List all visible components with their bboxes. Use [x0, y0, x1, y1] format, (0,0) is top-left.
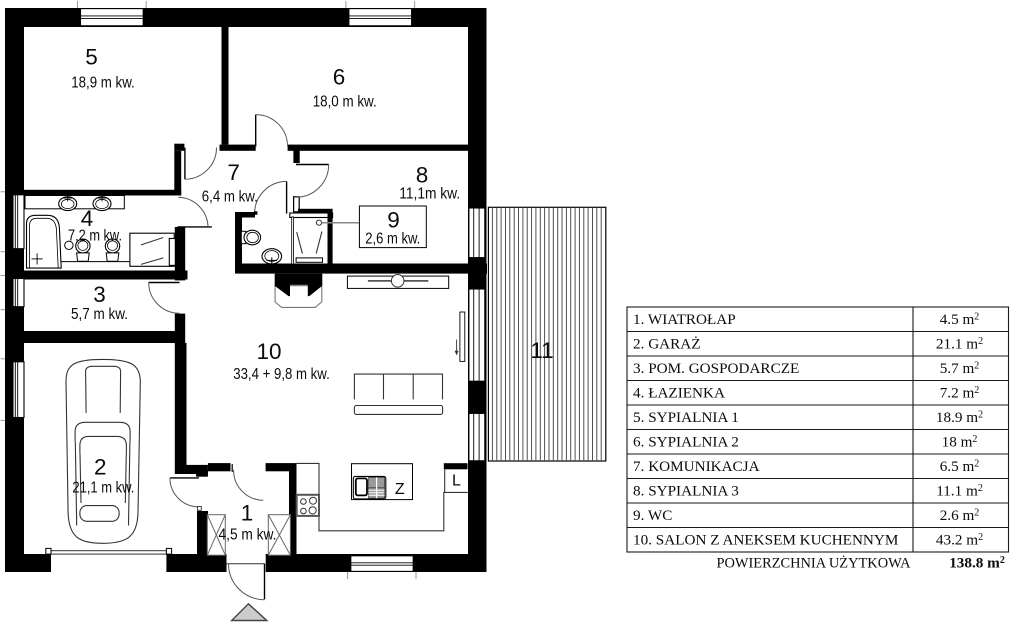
svg-text:21.1 m2: 21.1 m2 — [936, 336, 983, 353]
svg-text:3. POM. GOSPODARCZE: 3. POM. GOSPODARCZE — [633, 360, 799, 377]
svg-text:21,1 m kw.: 21,1 m kw. — [72, 480, 134, 497]
svg-text:2.6 m2: 2.6 m2 — [940, 507, 980, 524]
svg-text:18,0 m kw.: 18,0 m kw. — [313, 94, 377, 111]
svg-text:4,5 m kw.: 4,5 m kw. — [219, 527, 277, 544]
svg-text:7.2 m2: 7.2 m2 — [940, 385, 980, 402]
svg-text:7,2 m kw.: 7,2 m kw. — [68, 228, 122, 245]
svg-text:43.2 m2: 43.2 m2 — [936, 532, 983, 549]
svg-text:Z: Z — [395, 481, 405, 498]
svg-text:6: 6 — [333, 65, 346, 90]
svg-text:18,9 m kw.: 18,9 m kw. — [71, 75, 135, 92]
svg-text:18.9 m2: 18.9 m2 — [936, 409, 983, 426]
svg-text:4.5 m2: 4.5 m2 — [940, 311, 980, 328]
svg-text:10. SALON Z ANEKSEM KUCHENNYM: 10. SALON Z ANEKSEM KUCHENNYM — [633, 532, 899, 549]
svg-text:2: 2 — [94, 455, 107, 480]
svg-text:6. SYPIALNIA 2: 6. SYPIALNIA 2 — [633, 434, 739, 451]
svg-text:8: 8 — [416, 162, 429, 187]
svg-text:2,6 m kw.: 2,6 m kw. — [365, 231, 420, 248]
svg-text:138.8 m2: 138.8 m2 — [949, 555, 1005, 572]
svg-text:5: 5 — [85, 45, 98, 70]
svg-text:10: 10 — [256, 339, 281, 364]
svg-text:18 m2: 18 m2 — [942, 434, 978, 451]
svg-text:11.1 m2: 11.1 m2 — [936, 483, 983, 500]
svg-text:POWIERZCHNIA UŻYTKOWA: POWIERZCHNIA UŻYTKOWA — [717, 555, 911, 572]
svg-text:9: 9 — [387, 208, 400, 233]
svg-text:3: 3 — [93, 282, 106, 307]
svg-text:5.7 m2: 5.7 m2 — [940, 360, 980, 377]
svg-text:5,7 m kw.: 5,7 m kw. — [71, 306, 128, 323]
svg-text:9. WC: 9. WC — [633, 507, 672, 524]
svg-text:33,4 + 9,8 m kw.: 33,4 + 9,8 m kw. — [233, 366, 330, 383]
svg-text:7: 7 — [227, 160, 240, 185]
svg-text:2. GARAŻ: 2. GARAŻ — [633, 336, 701, 353]
svg-text:11,1m kw.: 11,1m kw. — [399, 186, 460, 203]
svg-text:6.5 m2: 6.5 m2 — [940, 458, 980, 475]
svg-text:1: 1 — [241, 501, 254, 526]
svg-text:7. KOMUNIKACJA: 7. KOMUNIKACJA — [633, 458, 760, 475]
svg-text:4. ŁAZIENKA: 4. ŁAZIENKA — [633, 385, 725, 402]
svg-text:8. SYPIALNIA 3: 8. SYPIALNIA 3 — [633, 483, 739, 500]
svg-text:1. WIATROŁAP: 1. WIATROŁAP — [633, 311, 736, 328]
svg-text:6,4 m kw.: 6,4 m kw. — [202, 189, 258, 206]
svg-text:11: 11 — [530, 338, 553, 363]
svg-text:L: L — [452, 473, 461, 490]
svg-text:5. SYPIALNIA 1: 5. SYPIALNIA 1 — [633, 409, 739, 426]
